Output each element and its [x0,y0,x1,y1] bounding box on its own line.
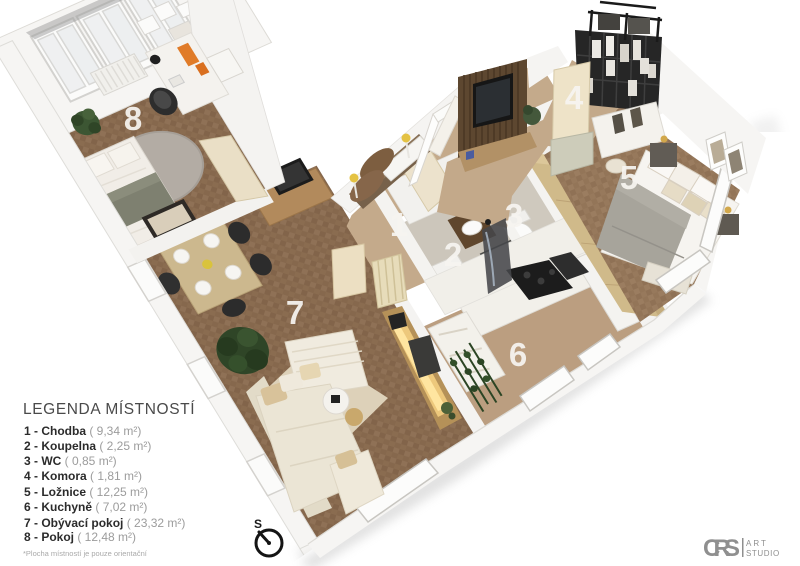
svg-text:LEGENDA MÍSTNOSTÍ: LEGENDA MÍSTNOSTÍ [23,401,195,418]
svg-text:S: S [254,517,262,531]
svg-text:7 - Obývací pokoj ( 23,32 m²): 7 - Obývací pokoj ( 23,32 m²) [24,516,185,530]
svg-text:6 - Kuchyně ( 7,02 m²): 6 - Kuchyně ( 7,02 m²) [24,500,147,514]
svg-text:CRS: CRS [703,535,740,562]
svg-text:3: 3 [505,197,523,234]
svg-text:3 - WC ( 0,85 m²): 3 - WC ( 0,85 m²) [24,454,117,468]
svg-text:8: 8 [124,100,142,137]
svg-text:4 - Komora ( 1,81 m²): 4 - Komora ( 1,81 m²) [24,469,142,483]
svg-text:ART: ART [746,539,768,548]
svg-text:1 - Chodba ( 9,34 m²): 1 - Chodba ( 9,34 m²) [24,424,141,438]
svg-text:6: 6 [509,336,527,373]
svg-text:2 - Koupelna ( 2,25 m²): 2 - Koupelna ( 2,25 m²) [24,439,151,453]
svg-text:1: 1 [390,206,408,243]
svg-text:5 - Ložnice ( 12,25 m²): 5 - Ložnice ( 12,25 m²) [24,485,148,499]
svg-text:4: 4 [565,79,584,116]
svg-text:8 - Pokoj ( 12,48 m²): 8 - Pokoj ( 12,48 m²) [24,530,136,544]
svg-text:5: 5 [620,159,638,196]
svg-text:STUDIO: STUDIO [746,549,780,558]
svg-text:2: 2 [444,236,462,273]
svg-text:*Plocha místností je pouze ori: *Plocha místností je pouze orientační [23,549,148,558]
svg-text:7: 7 [286,294,304,331]
